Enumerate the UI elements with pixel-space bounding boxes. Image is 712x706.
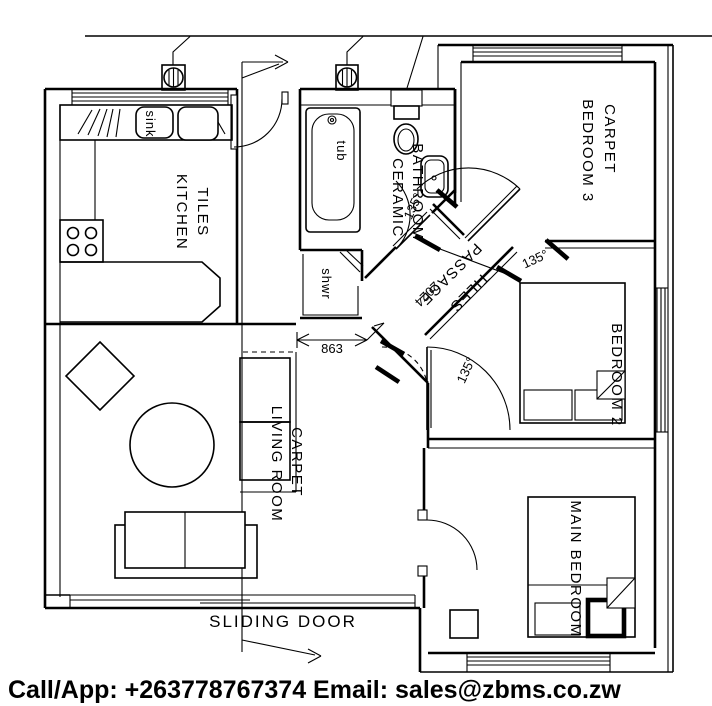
bedroom3-finish-label: CARPET bbox=[601, 104, 618, 174]
shower-label: shwr bbox=[319, 268, 334, 299]
bathroom-finish-label: CERAMIC bbox=[389, 158, 406, 238]
angle-bedroom3-door: 135° bbox=[520, 246, 551, 271]
nightstand bbox=[450, 610, 478, 638]
bedroom2-label: BEDROOM 2 bbox=[608, 323, 625, 427]
living-room-label: LIVING ROOM bbox=[268, 406, 285, 523]
tub-label: tub bbox=[334, 140, 349, 161]
armchair bbox=[66, 342, 134, 410]
bedroom3-label: BEDROOM 3 bbox=[579, 99, 596, 203]
dim-2024-text: 2024 bbox=[412, 279, 443, 310]
main-bedroom-door bbox=[418, 510, 477, 576]
vent-leader bbox=[407, 37, 423, 89]
gully-trap-left bbox=[162, 37, 190, 91]
sofa bbox=[115, 512, 257, 578]
living-room-finish-label: CARPET bbox=[288, 427, 305, 497]
sliding-door-label: SLIDING DOOR bbox=[209, 612, 357, 631]
round-table bbox=[130, 403, 214, 487]
contact-banner: Call/App: +263778767374 Email: sales@zbm… bbox=[8, 676, 621, 704]
entrance-door bbox=[231, 92, 288, 149]
contact-banner-text: Call/App: +263778767374 Email: sales@zbm… bbox=[8, 676, 621, 704]
main-bedroom-label: MAIN BEDROOM bbox=[567, 500, 584, 637]
angle-bedroom2-door: 135° bbox=[453, 355, 478, 386]
kitchen-label: KITCHEN bbox=[173, 174, 190, 250]
kitchen-finish-label: TILES bbox=[194, 187, 211, 236]
kitchen-counter bbox=[60, 262, 220, 322]
dim-863-text: 863 bbox=[321, 341, 343, 356]
tv-cabinet bbox=[240, 352, 296, 492]
sink-label: sink bbox=[143, 110, 158, 137]
floor-plan: KITCHEN TILES BATHROOM CERAMIC BEDROOM 3… bbox=[0, 0, 712, 706]
gully-trap-right bbox=[336, 37, 363, 91]
bathtub bbox=[306, 108, 360, 232]
stove bbox=[60, 140, 103, 262]
section-line bbox=[242, 55, 321, 663]
